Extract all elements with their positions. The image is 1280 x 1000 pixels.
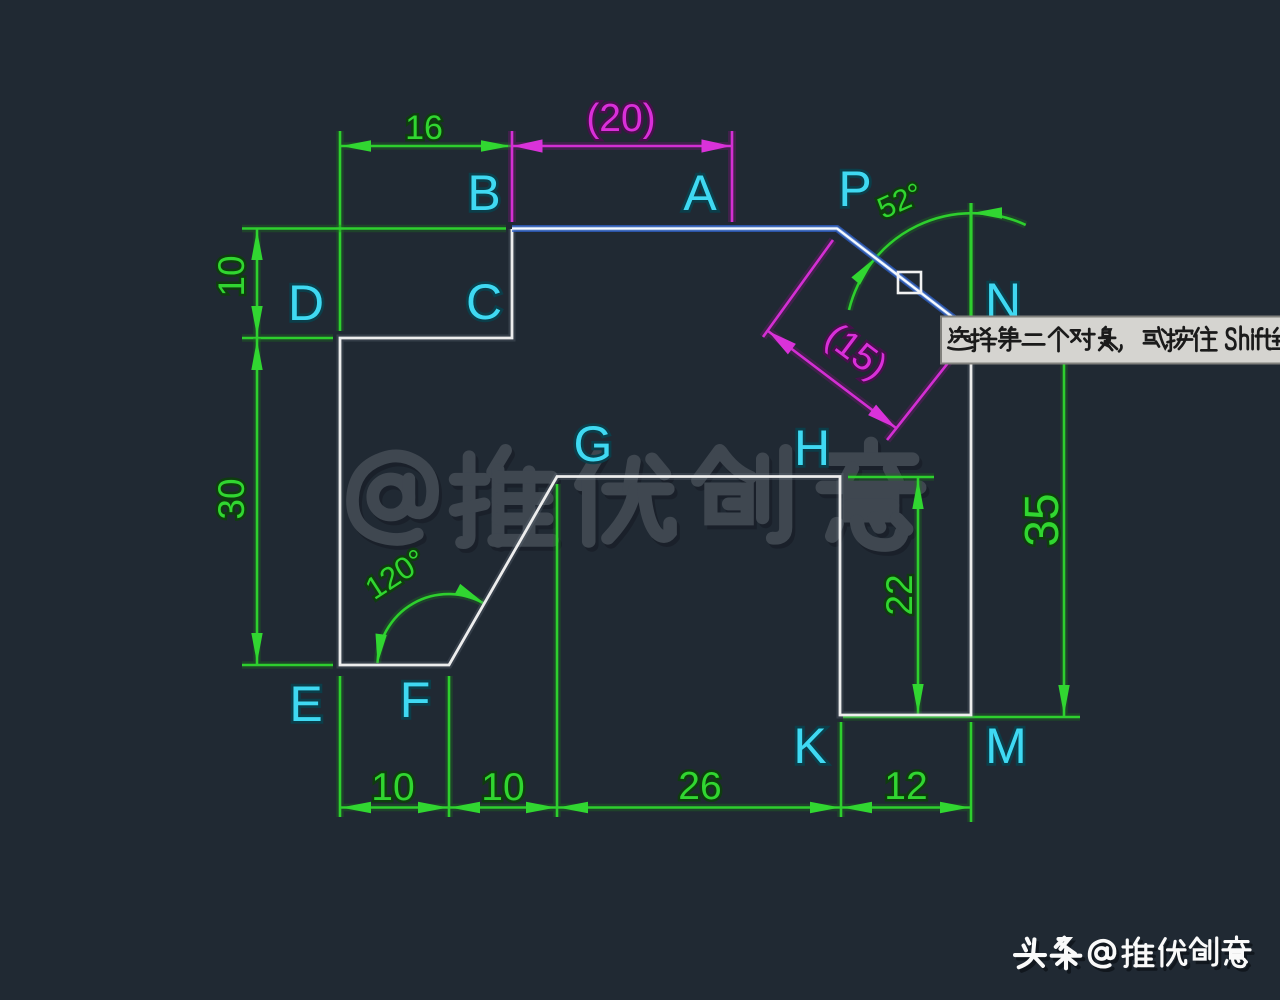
svg-text:26: 26 xyxy=(678,765,721,808)
svg-text:(20): (20) xyxy=(586,97,655,140)
svg-text:35: 35 xyxy=(1016,493,1069,546)
svg-text:F: F xyxy=(400,672,431,728)
svg-text:D: D xyxy=(288,275,324,331)
svg-text:10: 10 xyxy=(481,766,524,809)
svg-text:16: 16 xyxy=(405,109,443,147)
svg-text:10: 10 xyxy=(211,255,252,296)
svg-text:P: P xyxy=(838,161,871,217)
svg-text:12: 12 xyxy=(884,765,927,808)
svg-text:G: G xyxy=(574,416,613,472)
svg-text:A: A xyxy=(683,165,717,221)
svg-text:10: 10 xyxy=(371,766,414,809)
svg-text:M: M xyxy=(985,718,1027,774)
svg-text:22: 22 xyxy=(879,574,920,615)
svg-text:30: 30 xyxy=(211,478,252,519)
svg-text:C: C xyxy=(466,274,502,330)
svg-text:B: B xyxy=(467,165,500,221)
svg-text:K: K xyxy=(793,718,826,774)
svg-text:E: E xyxy=(289,676,322,732)
svg-text:H: H xyxy=(794,420,830,476)
